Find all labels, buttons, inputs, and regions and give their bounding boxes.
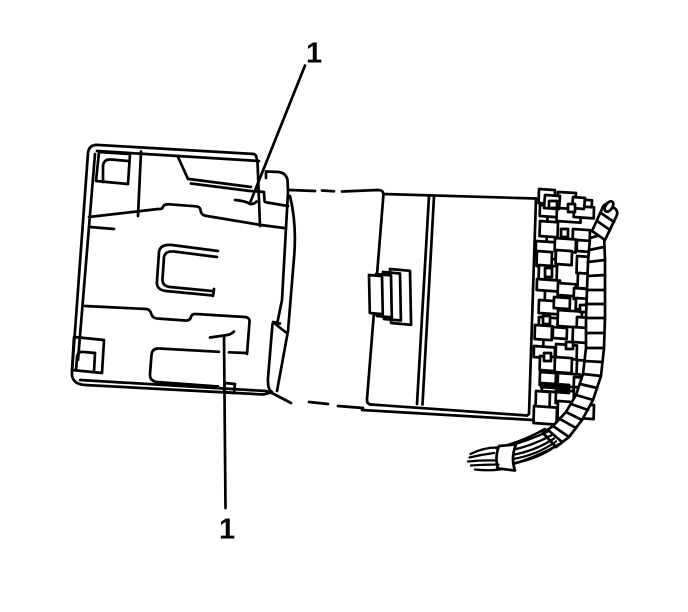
svg-text:1: 1: [306, 38, 322, 70]
svg-text:1: 1: [219, 514, 235, 546]
